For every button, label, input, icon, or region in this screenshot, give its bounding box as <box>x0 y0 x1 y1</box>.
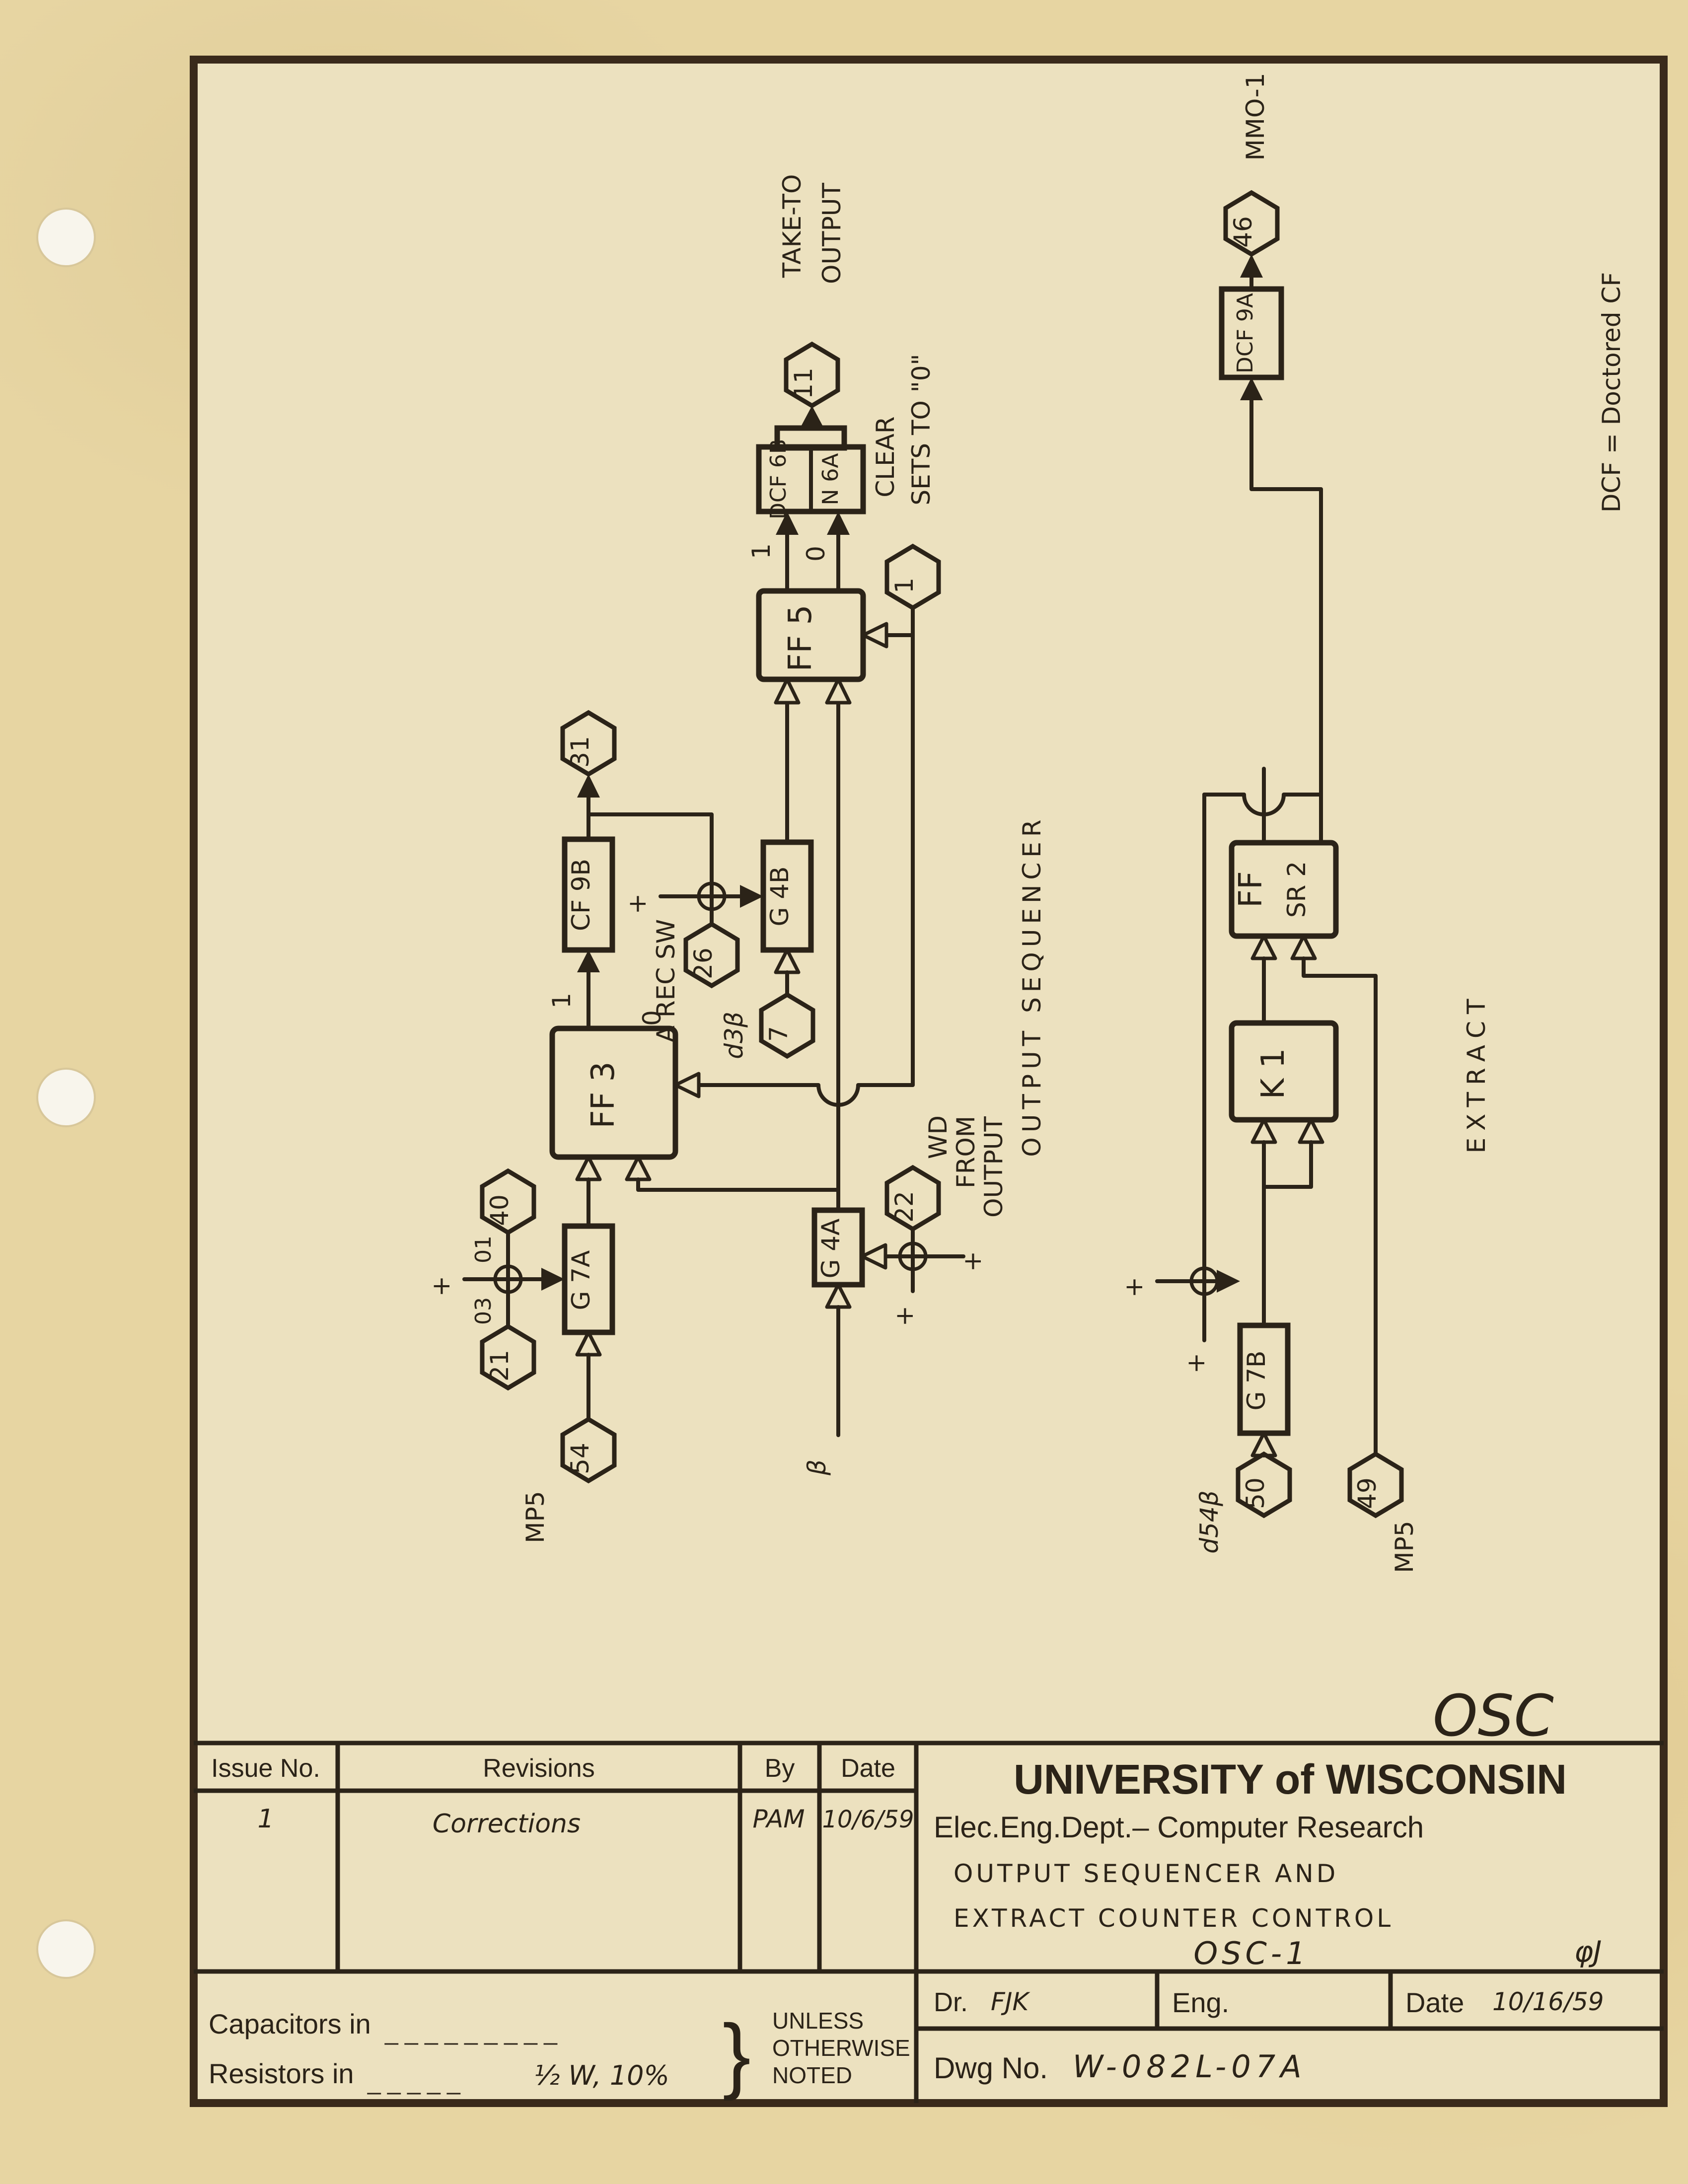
o3-label: 03 <box>471 1297 496 1325</box>
mmo1-label: MMO-1 <box>1241 73 1270 161</box>
ff3-one-label: 1 <box>547 993 576 1009</box>
output-word-label: OUTPUT <box>979 1116 1008 1218</box>
block-ffsr2-label-1: FF <box>1233 871 1269 908</box>
hexagon-22-number: 22 <box>890 1191 919 1223</box>
hexagon-1-number: 1 <box>890 578 919 593</box>
block-g4a-label: G 4A <box>816 1219 845 1279</box>
d54b-label: d54β <box>1195 1490 1224 1553</box>
sets-to-zero-label: SETS TO "0" <box>907 354 936 505</box>
unless-line-2: OTHERWISE <box>772 2035 910 2061</box>
punch-hole <box>37 209 95 266</box>
unless-line-3: NOTED <box>772 2062 852 2088</box>
osc-note-label: OSC <box>1433 1683 1554 1749</box>
hexagon-50-number: 50 <box>1241 1477 1270 1509</box>
dwg-label: Dwg No. <box>934 2051 1048 2085</box>
block-ff5-label: FF 5 <box>782 605 819 672</box>
unless-line-1: UNLESS <box>772 2008 864 2034</box>
dr-value: FJK <box>991 1987 1031 2016</box>
plus-terminal: + <box>427 1276 455 1297</box>
by-header: By <box>765 1754 795 1783</box>
brace: } <box>723 2007 751 2102</box>
block-g7b-label: G 7B <box>1242 1351 1271 1411</box>
hexagon-7-number: 7 <box>764 1026 793 1042</box>
hexagon-21-number: 21 <box>485 1350 514 1382</box>
hexagon-31-number: 31 <box>566 736 594 768</box>
punch-hole <box>37 1069 95 1126</box>
hexagon-46-number: 46 <box>1229 216 1257 248</box>
capacitors-label: Capacitors in <box>209 2008 371 2039</box>
ff5-zero-label: 0 <box>802 546 830 562</box>
block-dcf9a-label: DCF 9A <box>1233 293 1258 373</box>
from-label: FROM <box>952 1116 980 1188</box>
ff3-zero-label: 0 <box>638 1010 666 1026</box>
mp5-left-label: MP5 <box>521 1491 550 1543</box>
ff5-one-label: 1 <box>747 543 776 559</box>
take-to-output-label: OUTPUT <box>817 183 846 284</box>
revision-row-date: 10/6/59 <box>822 1806 914 1833</box>
block-g4b-label: G 4B <box>765 867 794 927</box>
resistors-dashes: _ _ _ _ _ <box>367 2069 461 2095</box>
date-value: 10/16/59 <box>1492 1987 1604 2016</box>
drawing-title-line-1: OUTPUT SEQUENCER AND <box>954 1859 1338 1888</box>
revisions-header: Revisions <box>483 1754 594 1783</box>
dwg-value: W-082L-07A <box>1073 2048 1307 2085</box>
clear-label: CLEAR <box>871 416 900 497</box>
resistors-value: ½ W, 10% <box>534 2060 669 2091</box>
plus-terminal: + <box>958 1251 987 1272</box>
mp5-right-label: MP5 <box>1390 1521 1419 1573</box>
take-to-label: TAKE-TO <box>778 174 807 279</box>
block-n6a-label: N 6A <box>818 453 843 506</box>
d3b-label: d3β <box>720 1012 748 1059</box>
hexagon-40-number: 40 <box>485 1194 514 1226</box>
hexagon-54-number: 54 <box>566 1443 594 1474</box>
wd-label: WD <box>924 1115 953 1159</box>
block-ff3-label: FF 3 <box>585 1062 622 1129</box>
department-line: Elec.Eng.Dept.– Computer Research <box>934 1811 1424 1844</box>
o1-label: 01 <box>471 1236 496 1263</box>
revision-row-issue: 1 <box>257 1804 274 1834</box>
hexagon-26-number: 26 <box>689 947 718 979</box>
university-title: UNIVERSITY of WISCONSIN <box>1014 1756 1567 1803</box>
beta-label: β <box>803 1459 831 1476</box>
plus-terminal: + <box>1119 1277 1148 1298</box>
output-sequencer-section-label: OUTPUT SEQUENCER <box>1018 814 1046 1157</box>
punch-hole <box>37 1920 95 1978</box>
issue-no-header: Issue No. <box>211 1754 320 1783</box>
capacitors-dashes: _ _ _ _ _ _ _ _ _ <box>384 2019 558 2045</box>
dr-label: Dr. <box>934 1987 968 2017</box>
plus-terminal: + <box>1181 1353 1210 1374</box>
eng-label: Eng. <box>1172 1987 1229 2018</box>
drawing-code: OSC-1 <box>1193 1935 1309 1971</box>
block-cf9b-label: CF 9B <box>567 859 595 931</box>
revision-row-description: Corrections <box>433 1809 581 1839</box>
extract-section-label: EXTRACT <box>1462 992 1491 1153</box>
date-label: Date <box>1405 1987 1464 2018</box>
drawing-title-line-2: EXTRACT COUNTER CONTROL <box>954 1904 1394 1933</box>
block-k1-label: K 1 <box>1255 1048 1292 1099</box>
plus-terminal: + <box>890 1306 919 1326</box>
block-dcf6b-label: DCF 6B <box>766 439 791 519</box>
hexagon-49-number: 49 <box>1353 1477 1382 1509</box>
dcf-note-label: DCF = Doctored CF <box>1597 272 1626 512</box>
hexagon-11-number: 11 <box>789 367 818 399</box>
resistors-label: Resistors in <box>209 2058 354 2089</box>
phi-mark: φJ <box>1574 1935 1602 1968</box>
block-g7a-label: G 7A <box>567 1250 595 1310</box>
date-header: Date <box>841 1754 895 1783</box>
revision-row-by: PAM <box>752 1805 805 1833</box>
plus-terminal: + <box>623 893 652 914</box>
scanned-logic-diagram: TAKE-TO OUTPUT 11 DCF 6B N 6A 1 0 CLEAR … <box>0 0 1688 2184</box>
block-ffsr2-label-2: SR 2 <box>1282 861 1311 918</box>
